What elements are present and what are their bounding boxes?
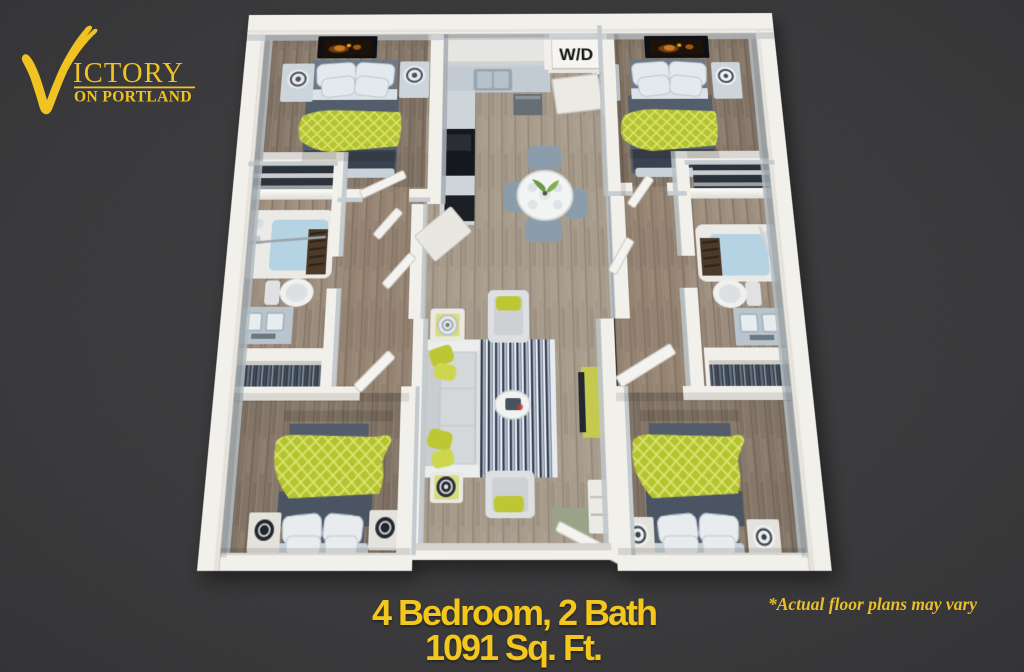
svg-text:W/D: W/D [559, 46, 594, 64]
svg-text:ON PORTLAND: ON PORTLAND [74, 89, 192, 106]
svg-text:ICTORY: ICTORY [73, 58, 184, 89]
